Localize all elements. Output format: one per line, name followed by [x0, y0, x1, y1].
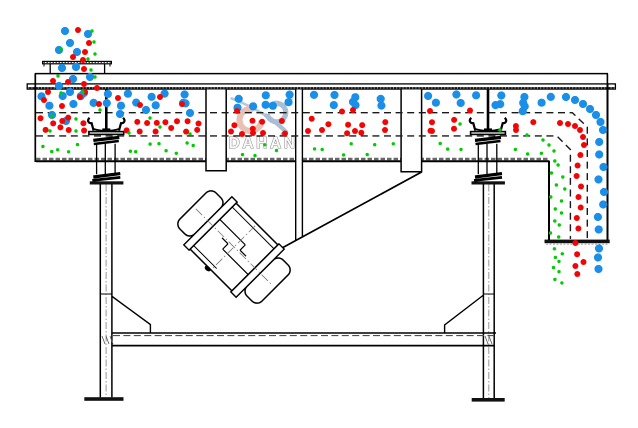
svg-text:DAHAN: DAHAN — [229, 135, 296, 152]
